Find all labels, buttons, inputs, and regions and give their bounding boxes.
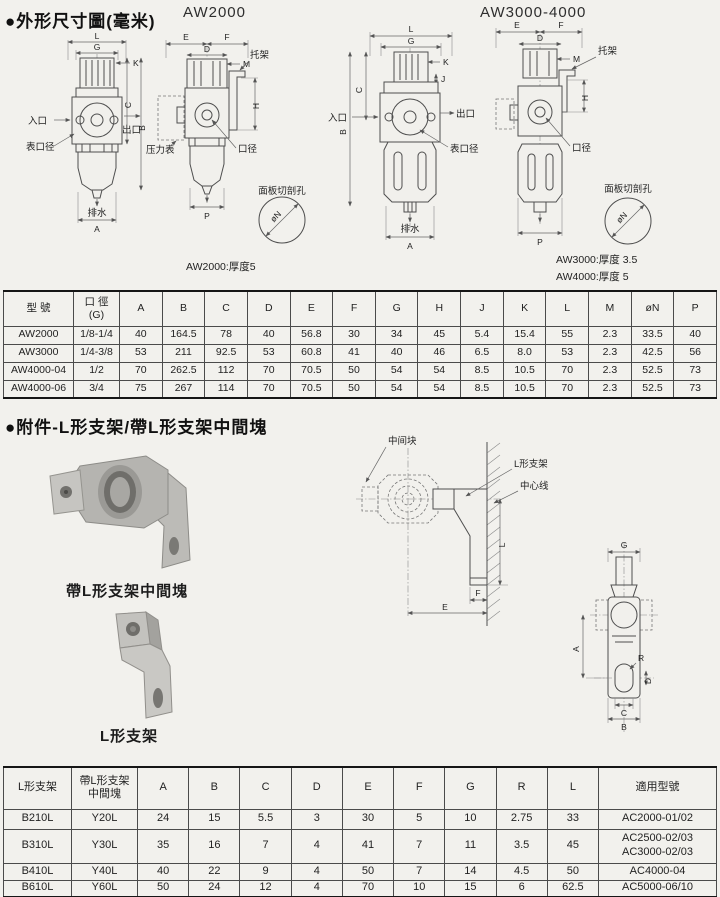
- column-header: F: [394, 767, 445, 809]
- column-header: 型 號: [4, 291, 74, 326]
- port-label: 口径: [238, 143, 258, 155]
- table-cell: 15: [445, 880, 496, 897]
- dimension-drawings: L G K 入口 出口 C B: [0, 0, 720, 286]
- table-cell: B410L: [4, 863, 72, 880]
- table-cell: 15: [189, 809, 240, 829]
- table-cell: 60.8: [290, 344, 333, 362]
- column-header: M: [589, 291, 632, 326]
- table-row: AW30001/4-3/85321192.55360.84140466.58.0…: [4, 344, 717, 362]
- inlet-label: 入口: [328, 113, 347, 124]
- table-cell: 15.4: [503, 326, 546, 344]
- table-cell: 16: [189, 829, 240, 863]
- table-row: B610LY60L5024124701015662.5AC5000-06/10: [4, 880, 717, 897]
- panel-cutout-label: 面板切剖孔: [258, 185, 306, 197]
- table-cell: 4: [291, 829, 342, 863]
- table-cell: 7: [394, 829, 445, 863]
- table-cell: 2.3: [589, 344, 632, 362]
- dim-B: B: [137, 125, 147, 131]
- photo-l-bracket: [88, 610, 198, 725]
- table-cell: 9: [240, 863, 291, 880]
- inlet-label: 入口: [28, 116, 47, 127]
- dim-M: M: [573, 54, 580, 64]
- table-cell: 8.0: [503, 344, 546, 362]
- aw3000-4000-side-view: E F D M 托架 H 口径: [496, 20, 652, 283]
- table-cell: 24: [138, 809, 189, 829]
- column-header: 口 徑 (G): [74, 291, 120, 326]
- table-cell: 24: [189, 880, 240, 897]
- table-cell: B310L: [4, 829, 72, 863]
- table-cell: 46: [418, 344, 461, 362]
- dim-K: K: [443, 57, 449, 67]
- dim-A: A: [94, 224, 100, 234]
- dim-F: F: [558, 20, 563, 30]
- table-cell: 53: [546, 344, 589, 362]
- column-header: øN: [631, 291, 674, 326]
- table-cell: 1/8-1/4: [74, 326, 120, 344]
- column-header: P: [674, 291, 717, 326]
- dim-L: L: [497, 542, 507, 547]
- port-label: 口径: [572, 142, 592, 154]
- table-cell: 53: [120, 344, 163, 362]
- table-cell: 35: [138, 829, 189, 863]
- column-header: C: [205, 291, 248, 326]
- table-cell: 1/2: [74, 362, 120, 380]
- center-line-label: 中心线: [520, 480, 549, 492]
- table-cell: AW4000-06: [4, 380, 74, 398]
- table-cell: 50: [547, 863, 598, 880]
- table-cell: AW3000: [4, 344, 74, 362]
- wall-mount-view: 中间块 L形支架 中心线 L F E: [356, 435, 549, 626]
- drain-label: 排水: [87, 207, 107, 219]
- bracket-table-header-row: L形支架帶L形支架 中間塊ABCDEFGRL適用型號: [4, 767, 717, 809]
- column-header: 適用型號: [599, 767, 717, 809]
- dim-F: F: [475, 588, 480, 598]
- table-cell: 8.5: [461, 380, 504, 398]
- column-header: B: [189, 767, 240, 809]
- dimensions-section-title: ●外形尺寸圖(毫米): [5, 7, 156, 32]
- dim-E: E: [514, 20, 520, 30]
- bracket-table: L形支架帶L形支架 中間塊ABCDEFGRL適用型號 B210LY20L2415…: [3, 766, 717, 897]
- table-cell: 78: [205, 326, 248, 344]
- dim-B: B: [338, 129, 348, 135]
- note-aw4000-thickness: AW4000:厚度 5: [556, 270, 629, 283]
- table-cell: 70.5: [290, 380, 333, 398]
- bracket-table-wrap: L形支架帶L形支架 中間塊ABCDEFGRL適用型號 B210LY20L2415…: [3, 766, 717, 897]
- table-cell: 70: [342, 880, 393, 897]
- dim-L: L: [95, 31, 100, 41]
- dim-G: G: [408, 36, 415, 46]
- table-cell: 56.8: [290, 326, 333, 344]
- photo-bracket-with-middle-block: [50, 448, 210, 578]
- l-bracket-label: L形支架: [514, 458, 548, 470]
- l-bracket-photo-shapes: [116, 612, 172, 718]
- table-cell: 12: [240, 880, 291, 897]
- table-cell: AC4000-04: [599, 863, 717, 880]
- table-cell: 50: [138, 880, 189, 897]
- dim-F: F: [224, 32, 229, 42]
- table-row: AW20001/8-1/440164.5784056.83034455.415.…: [4, 326, 717, 344]
- dim-J: J: [441, 74, 445, 84]
- column-header: A: [120, 291, 163, 326]
- dimensions-table-body: AW20001/8-1/440164.5784056.83034455.415.…: [4, 326, 717, 398]
- table-cell: 70: [120, 362, 163, 380]
- column-header: D: [291, 767, 342, 809]
- table-cell: 52.5: [631, 362, 674, 380]
- table-cell: AC5000-06/10: [599, 880, 717, 897]
- table-cell: 5: [394, 809, 445, 829]
- panel-cutout-label: 面板切剖孔: [604, 183, 652, 195]
- table-cell: 33: [547, 809, 598, 829]
- table-cell: 7: [394, 863, 445, 880]
- column-header: C: [240, 767, 291, 809]
- table-cell: 56: [674, 344, 717, 362]
- table-cell: 4: [291, 863, 342, 880]
- column-header: D: [247, 291, 290, 326]
- table-cell: 2.75: [496, 809, 547, 829]
- table-cell: 45: [418, 326, 461, 344]
- column-header: L形支架: [4, 767, 72, 809]
- column-header: G: [375, 291, 418, 326]
- column-header: R: [496, 767, 547, 809]
- gauge-port-label: 表口径: [26, 141, 55, 153]
- column-header: K: [503, 291, 546, 326]
- wall-hatching: [487, 443, 500, 621]
- table-cell: 5.4: [461, 326, 504, 344]
- table-cell: 2.3: [589, 326, 632, 344]
- table-cell: 70: [546, 362, 589, 380]
- table-cell: 6: [496, 880, 547, 897]
- table-cell: 40: [674, 326, 717, 344]
- dim-P: P: [204, 211, 210, 221]
- table-cell: 70: [247, 380, 290, 398]
- column-header: L: [547, 767, 598, 809]
- table-cell: 45: [547, 829, 598, 863]
- table-cell: AC2500-02/03 AC3000-02/03: [599, 829, 717, 863]
- table-cell: 2.3: [589, 380, 632, 398]
- accessory-section-title: ●附件-L形支架/帶L形支架中間塊: [5, 413, 267, 438]
- phi-n-label: øN: [614, 210, 629, 225]
- dim-C: C: [354, 87, 364, 93]
- table-cell: Y60L: [72, 880, 138, 897]
- table-cell: 10.5: [503, 380, 546, 398]
- dim-D: D: [204, 44, 210, 54]
- dim-A: A: [407, 241, 413, 251]
- dimensions-table-wrap: 型 號口 徑 (G)ABCDEFGHJKLMøNP AW20001/8-1/44…: [3, 290, 717, 399]
- aw2000-side-view: E F D M 托架 H 压力表 口径: [146, 32, 306, 273]
- aw2000-front-view: L G K 入口 出口 C B: [26, 31, 147, 234]
- dim-E: E: [442, 602, 448, 612]
- table-cell: 164.5: [162, 326, 205, 344]
- table-cell: 30: [333, 326, 376, 344]
- drain-label: 排水: [400, 223, 420, 235]
- dim-A: A: [571, 646, 581, 652]
- table-cell: 211: [162, 344, 205, 362]
- column-header: B: [162, 291, 205, 326]
- column-header: F: [333, 291, 376, 326]
- dim-B: B: [621, 722, 627, 732]
- dim-H: H: [251, 103, 261, 109]
- table-cell: 34: [375, 326, 418, 344]
- column-header: J: [461, 291, 504, 326]
- dim-P: P: [537, 237, 543, 247]
- dim-C: C: [621, 708, 627, 718]
- photo1-caption: 帶L形支架中間塊: [66, 580, 188, 601]
- outlet-label: 出口: [456, 108, 475, 120]
- table-cell: AW2000: [4, 326, 74, 344]
- table-row: B210LY20L24155.53305102.7533AC2000-01/02: [4, 809, 717, 829]
- dim-C: C: [123, 102, 133, 108]
- model-aw3000-4000-title: AW3000-4000: [480, 4, 586, 21]
- middle-block-photo-shapes: [50, 456, 190, 568]
- table-cell: 5.5: [240, 809, 291, 829]
- aw3000-4000-front-view: L G K J C B 入口 出口 表口径: [328, 24, 479, 251]
- table-cell: 70: [546, 380, 589, 398]
- table-cell: 6.5: [461, 344, 504, 362]
- table-cell: 3.5: [496, 829, 547, 863]
- table-cell: 54: [375, 362, 418, 380]
- dim-E: E: [183, 32, 189, 42]
- table-cell: 7: [240, 829, 291, 863]
- table-cell: 2.3: [589, 362, 632, 380]
- dim-L: L: [409, 24, 414, 34]
- table-cell: 11: [445, 829, 496, 863]
- dimensions-table: 型 號口 徑 (G)ABCDEFGHJKLMøNP AW20001/8-1/44…: [3, 290, 717, 399]
- note-aw2000-thickness: AW2000:厚度5: [186, 260, 256, 273]
- table-row: AW4000-041/270262.51127070.55054548.510.…: [4, 362, 717, 380]
- table-cell: 50: [333, 380, 376, 398]
- table-cell: 114: [205, 380, 248, 398]
- accessory-drawing: 中间块 L形支架 中心线 L F E G: [350, 430, 720, 760]
- table-cell: 112: [205, 362, 248, 380]
- table-cell: B210L: [4, 809, 72, 829]
- table-cell: 3/4: [74, 380, 120, 398]
- table-cell: 54: [418, 380, 461, 398]
- dimensions-table-header-row: 型 號口 徑 (G)ABCDEFGHJKLMøNP: [4, 291, 717, 326]
- table-cell: 40: [247, 326, 290, 344]
- table-cell: 8.5: [461, 362, 504, 380]
- table-cell: 75: [120, 380, 163, 398]
- dim-H: H: [580, 95, 590, 101]
- table-cell: 42.5: [631, 344, 674, 362]
- table-cell: 10: [445, 809, 496, 829]
- column-header: H: [418, 291, 461, 326]
- catalog-page: L G K 入口 出口 C B: [0, 0, 720, 897]
- table-cell: Y40L: [72, 863, 138, 880]
- table-row: AW4000-063/4752671147070.55054548.510.57…: [4, 380, 717, 398]
- column-header: 帶L形支架 中間塊: [72, 767, 138, 809]
- table-cell: 54: [418, 362, 461, 380]
- note-aw3000-thickness: AW3000:厚度 3.5: [556, 253, 637, 266]
- table-cell: 10.5: [503, 362, 546, 380]
- table-cell: 267: [162, 380, 205, 398]
- table-cell: 4.5: [496, 863, 547, 880]
- table-cell: 55: [546, 326, 589, 344]
- bracket-table-body: B210LY20L24155.53305102.7533AC2000-01/02…: [4, 809, 717, 897]
- table-cell: 41: [342, 829, 393, 863]
- table-cell: 53: [247, 344, 290, 362]
- table-cell: 22: [189, 863, 240, 880]
- table-cell: Y30L: [72, 829, 138, 863]
- table-row: B310LY30L351674417113.545AC2500-02/03 AC…: [4, 829, 717, 863]
- dim-D: D: [537, 33, 543, 43]
- table-cell: 54: [375, 380, 418, 398]
- photo2-caption: L形支架: [100, 725, 158, 746]
- dim-K: K: [133, 58, 139, 68]
- column-header: G: [445, 767, 496, 809]
- table-cell: 14: [445, 863, 496, 880]
- table-cell: 62.5: [547, 880, 598, 897]
- table-cell: 1/4-3/8: [74, 344, 120, 362]
- table-cell: 73: [674, 362, 717, 380]
- table-cell: 52.5: [631, 380, 674, 398]
- column-header: L: [546, 291, 589, 326]
- table-cell: AW4000-04: [4, 362, 74, 380]
- table-cell: 10: [394, 880, 445, 897]
- dim-D: D: [643, 678, 653, 684]
- table-cell: B610L: [4, 880, 72, 897]
- table-cell: 50: [342, 863, 393, 880]
- bracket-label: 托架: [250, 49, 270, 61]
- table-cell: 50: [333, 362, 376, 380]
- table-cell: 92.5: [205, 344, 248, 362]
- table-cell: 4: [291, 880, 342, 897]
- column-header: E: [290, 291, 333, 326]
- dim-G: G: [94, 42, 101, 52]
- dim-R: R: [638, 653, 644, 663]
- column-header: E: [342, 767, 393, 809]
- table-cell: AC2000-01/02: [599, 809, 717, 829]
- gauge-port-label: 表口径: [450, 143, 479, 155]
- model-aw2000-title: AW2000: [183, 4, 246, 21]
- table-cell: 73: [674, 380, 717, 398]
- table-cell: 40: [120, 326, 163, 344]
- table-cell: 30: [342, 809, 393, 829]
- table-cell: Y20L: [72, 809, 138, 829]
- table-cell: 33.5: [631, 326, 674, 344]
- bracket-label: 托架: [598, 45, 618, 57]
- table-cell: 70.5: [290, 362, 333, 380]
- dim-G: G: [621, 540, 628, 550]
- table-cell: 70: [247, 362, 290, 380]
- table-cell: 41: [333, 344, 376, 362]
- phi-n-label: øN: [268, 209, 283, 224]
- middle-block-label: 中间块: [388, 435, 417, 447]
- column-header: A: [138, 767, 189, 809]
- table-cell: 262.5: [162, 362, 205, 380]
- middle-block-elevation-view: G R D A C B: [571, 540, 658, 732]
- table-row: B410LY40L402294507144.550AC4000-04: [4, 863, 717, 880]
- table-cell: 40: [375, 344, 418, 362]
- table-cell: 40: [138, 863, 189, 880]
- table-cell: 3: [291, 809, 342, 829]
